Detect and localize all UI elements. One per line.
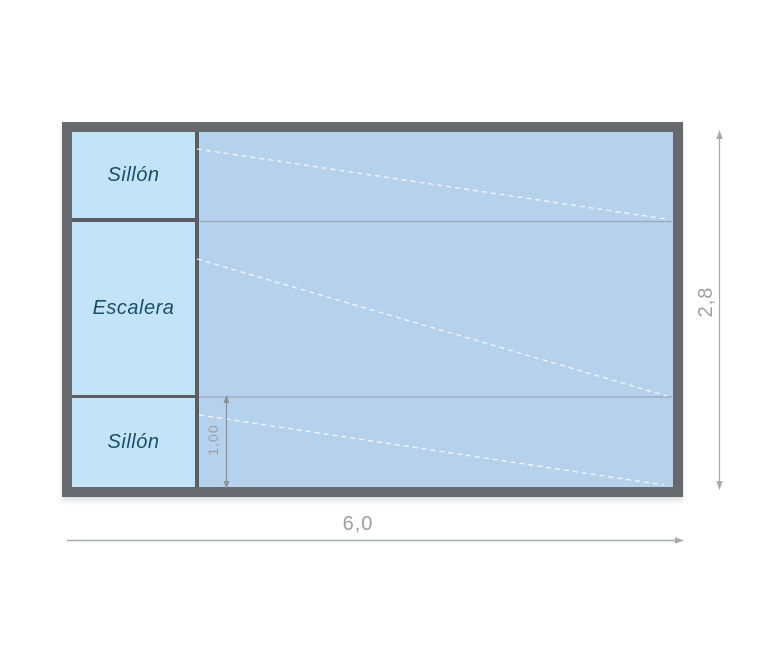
feature-label-escalera: Escalera (93, 297, 175, 320)
dimension-label-height: 2,8 (694, 272, 718, 332)
dimension-line-width (67, 537, 684, 543)
dimension-label-feature-width: 1,00 (205, 415, 221, 465)
feature-box-escalera: Escalera (72, 222, 195, 398)
pool-frame: Sillón Escalera Sillón (62, 122, 683, 497)
feature-label-sillon-bottom: Sillón (108, 431, 160, 454)
dimension-label-width: 6,0 (328, 512, 388, 536)
feature-box-sillon-top: Sillón (72, 132, 195, 222)
feature-column: Sillón Escalera Sillón (72, 132, 199, 487)
feature-box-sillon-bottom: Sillón (72, 398, 195, 487)
pool-plan-diagram: Sillón Escalera Sillón (0, 0, 768, 671)
feature-label-sillon-top: Sillón (108, 164, 160, 187)
